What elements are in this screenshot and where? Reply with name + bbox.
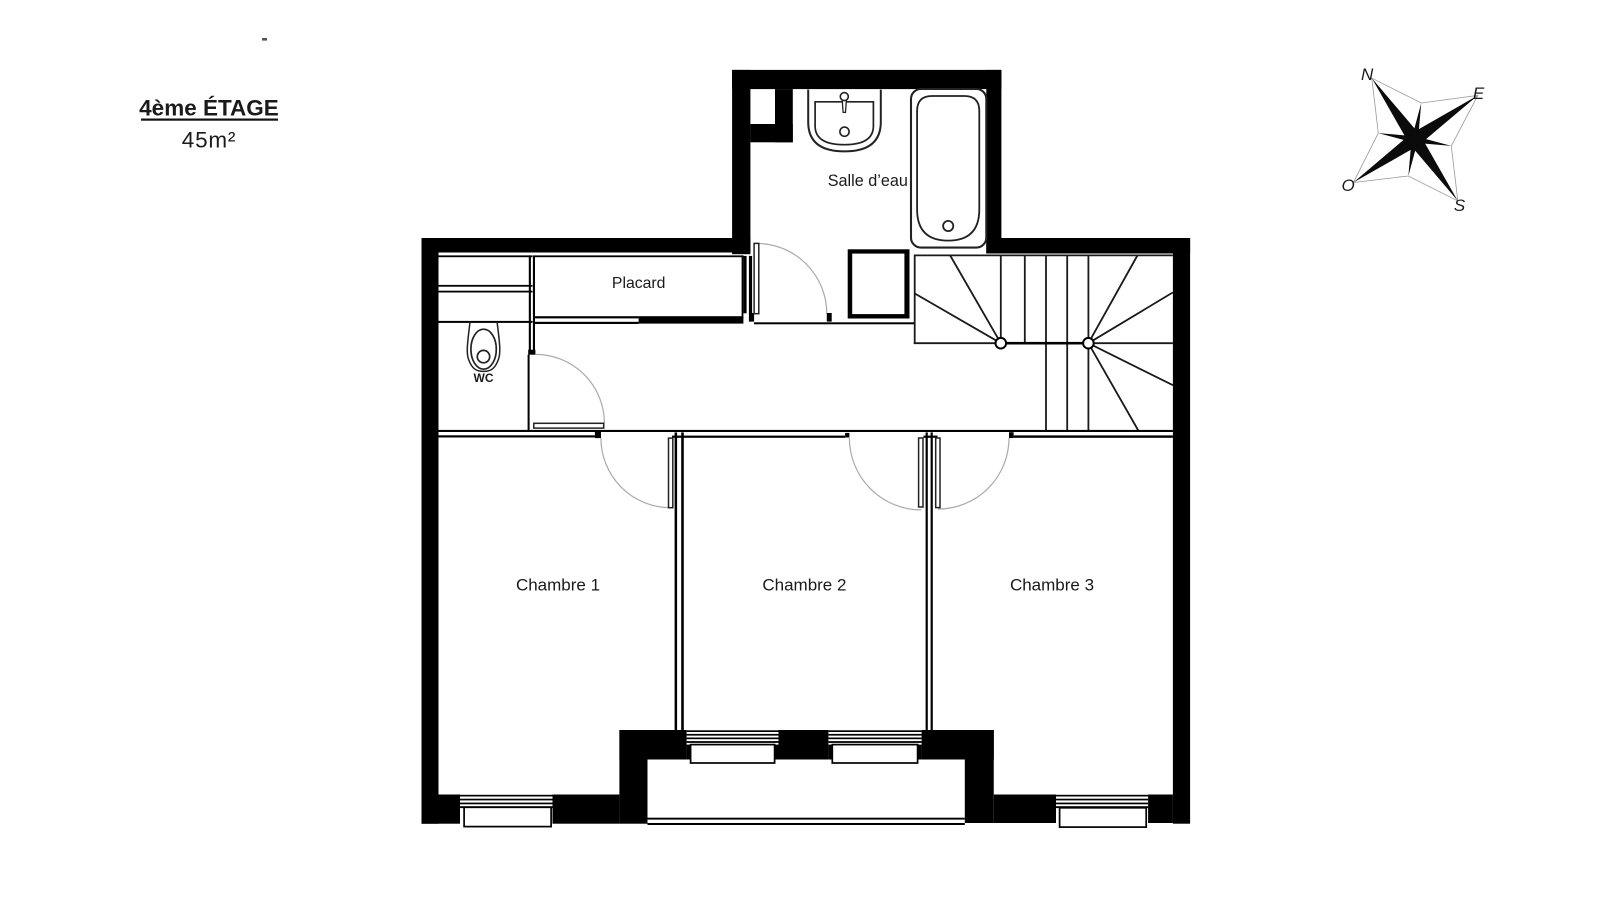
svg-text:4ème ÉTAGE: 4ème ÉTAGE (139, 96, 279, 121)
svg-text:S: S (1454, 196, 1466, 215)
svg-text:E: E (1473, 84, 1485, 103)
svg-text:WC: WC (474, 371, 494, 385)
svg-text:Chambre 3: Chambre 3 (1010, 576, 1094, 595)
svg-text:Chambre 1: Chambre 1 (516, 576, 600, 595)
svg-text:Placard: Placard (612, 275, 666, 292)
svg-text:N: N (1361, 65, 1374, 84)
svg-text:Salle d’eau: Salle d’eau (828, 172, 908, 190)
svg-text:O: O (1341, 176, 1354, 195)
svg-text:45m²: 45m² (182, 128, 236, 153)
svg-text:Chambre 2: Chambre 2 (762, 576, 846, 595)
